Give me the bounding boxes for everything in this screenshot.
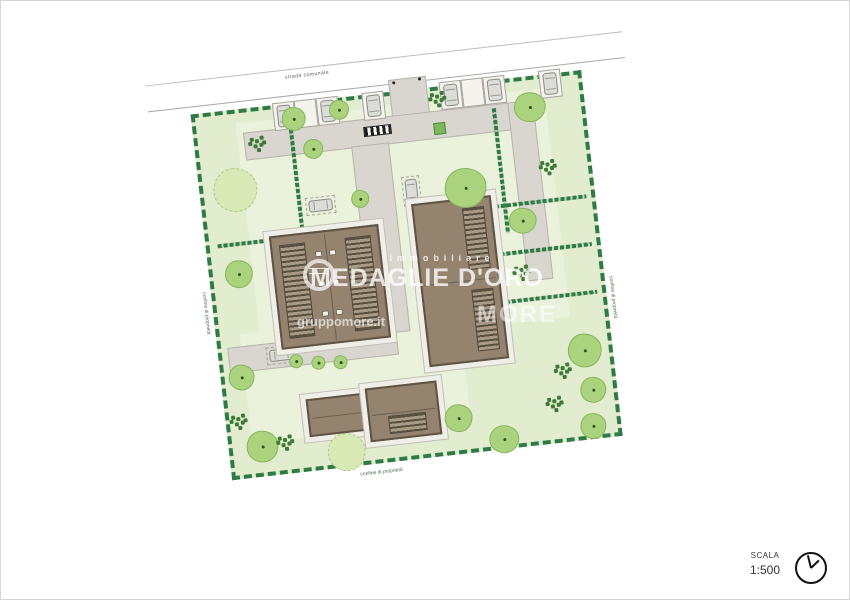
car-symbol — [542, 72, 558, 95]
building-south-garage — [365, 380, 443, 442]
parking-stall — [460, 77, 485, 107]
green-utility-box — [433, 122, 446, 135]
skylight — [318, 280, 326, 287]
property-site — [191, 70, 623, 480]
skylight — [322, 310, 330, 317]
shrub-cluster — [547, 398, 551, 402]
building-ridge-line — [312, 412, 362, 419]
scale-label: SCALA — [739, 551, 791, 560]
building-south-small — [306, 393, 368, 437]
site-plan-page: strada comunale — [0, 0, 850, 600]
shrub-cluster — [555, 364, 559, 368]
car-symbol — [366, 94, 382, 117]
shrub-cluster — [514, 267, 518, 271]
shrub-cluster — [231, 416, 235, 420]
skylight — [336, 309, 344, 316]
boundary-label-left: confine di proprietà — [201, 292, 212, 335]
car-symbol — [404, 178, 419, 203]
building-ridge-line — [424, 277, 496, 286]
shrub-cluster — [430, 93, 434, 97]
shrub-cluster — [540, 161, 544, 165]
tree-symbol — [488, 424, 521, 455]
skylight — [332, 279, 340, 286]
boundary-label-right: confine di proprietà — [608, 276, 619, 319]
car-symbol — [487, 78, 503, 101]
public-road-label: strada comunale — [285, 70, 330, 81]
tree-symbol — [579, 375, 608, 404]
tree-symbol — [566, 332, 604, 370]
roof-hatch-strip — [388, 412, 428, 434]
shrub-cluster — [278, 436, 282, 440]
scale-block: SCALA 1:500 — [739, 551, 791, 577]
tree-symbol — [223, 259, 254, 290]
shrub-cluster — [250, 138, 254, 142]
roof-hatch-strip — [279, 242, 315, 338]
north-arrow-icon — [795, 552, 827, 584]
scale-value: 1:500 — [739, 563, 791, 577]
skylight — [315, 251, 323, 258]
building-west-block — [269, 224, 391, 350]
roof-hatch-strip — [462, 206, 491, 270]
site-plan-drawing: strada comunale — [174, 27, 642, 522]
boundary-label-bottom: confine di proprietà — [360, 467, 403, 478]
car-symbol — [443, 83, 459, 106]
skylight — [329, 249, 337, 256]
roof-hatch-strip — [345, 235, 381, 331]
roof-hatch-strip — [471, 287, 500, 351]
tree-symbol — [579, 412, 608, 441]
tree-symbol — [326, 431, 368, 473]
